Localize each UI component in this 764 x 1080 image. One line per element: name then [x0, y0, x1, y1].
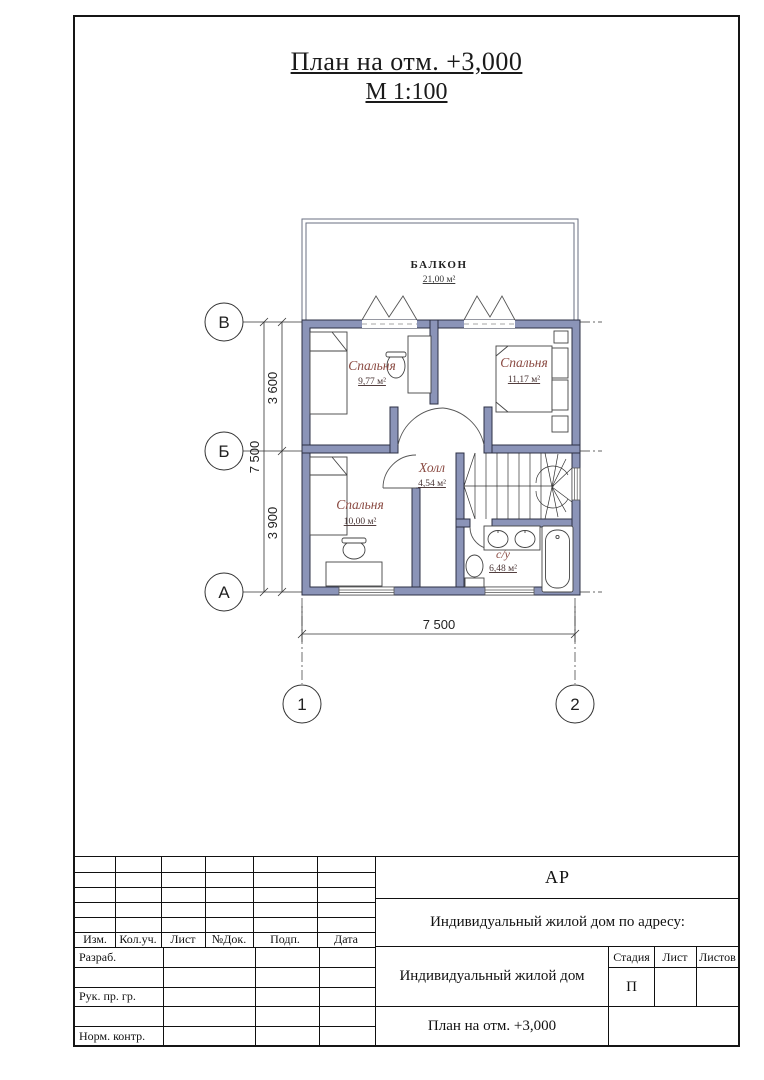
col-data: Дата [317, 932, 375, 947]
bathroom-fixtures [465, 526, 573, 592]
room-ul-area: 9,77 м² [358, 377, 386, 387]
axis-col-right: 2 [570, 695, 579, 714]
dim-v-top: 3 600 [265, 372, 280, 405]
project-code-cell: АР [376, 857, 739, 899]
plan-scale: М 1:100 [75, 79, 738, 106]
room-ll-label: Спальня [336, 497, 384, 512]
dim-h-total: 7 500 [423, 617, 456, 632]
row-razrab: Разраб. [79, 947, 116, 967]
address-text: Индивидуальный жилой дом по адресу: [430, 914, 685, 931]
col-list: Лист [161, 932, 205, 947]
drawing-title: План на отм. +3,000 М 1:100 [75, 47, 738, 106]
stage-value: П [609, 967, 654, 1007]
listov-label: Листов [696, 947, 739, 967]
stage-grid: Стадия Лист Листов П [609, 947, 739, 1007]
project-name: Индивидуальный жилой дом [399, 968, 584, 985]
project-code: АР [545, 867, 570, 888]
bathtub-icon [542, 526, 573, 592]
sink-icon [488, 531, 508, 548]
row-ruk: Рук. пр. гр. [79, 987, 136, 1006]
desk-chair-2 [326, 538, 382, 586]
casement-icon [362, 296, 417, 320]
sheet-frame: План на отм. +3,000 М 1:100 [73, 15, 740, 1047]
title-block-left-grid: Изм. Кол.уч. Лист №Док. Подп. Дата Разра… [75, 857, 375, 1046]
axis-col-left: 1 [297, 695, 306, 714]
col-podp: Подп. [253, 932, 317, 947]
floor-plan: БАЛКОН 21,00 м² Спальня 9,77 м² Спальня … [200, 207, 685, 752]
balcony-label: БАЛКОН [410, 259, 467, 271]
sink-counter [484, 526, 540, 550]
hall-area: 4,54 м² [418, 479, 446, 489]
axis-row-bottom: А [218, 583, 230, 602]
drawing-sheet: План на отм. +3,000 М 1:100 [0, 0, 764, 1080]
room-ll-area: 10,00 м² [344, 517, 377, 527]
bed-single-2 [310, 457, 347, 535]
stairs [464, 453, 572, 519]
row-norm: Норм. контр. [79, 1026, 145, 1046]
stage-label: Стадия [609, 947, 654, 967]
col-izm: Изм. [75, 932, 115, 947]
address-cell: Индивидуальный жилой дом по адресу: [376, 899, 739, 947]
dim-v-bottom: 3 900 [265, 507, 280, 540]
room-ur-area: 11,17 м² [508, 375, 540, 385]
room-ul-label: Спальня [348, 358, 396, 373]
drawing-name: План на отм. +3,000 [428, 1018, 556, 1035]
list-label: Лист [654, 947, 696, 967]
bath-label: с/у [496, 547, 511, 561]
plan-title: План на отм. +3,000 [75, 47, 738, 77]
bed-single [310, 332, 347, 414]
toilet-icon [465, 555, 484, 587]
casement-icon [464, 296, 515, 320]
col-koluch: Кол.уч. [115, 932, 161, 947]
col-doc: №Док. [205, 932, 253, 947]
project-name-cell: Индивидуальный жилой дом [376, 947, 609, 1007]
room-ur-label: Спальня [500, 355, 548, 370]
axis-row-top: В [218, 313, 229, 332]
title-block-right: АР Индивидуальный жилой дом по адресу: И… [375, 857, 738, 1046]
drawing-name-cell: План на отм. +3,000 [376, 1007, 609, 1046]
sink-icon [515, 531, 535, 548]
bath-area: 6,48 м² [489, 564, 517, 574]
balcony-area: 21,00 м² [423, 275, 456, 285]
dim-v-total: 7 500 [247, 441, 262, 474]
hall-label: Холл [418, 460, 445, 475]
axis-row-mid: Б [218, 442, 229, 461]
title-block: Изм. Кол.уч. Лист №Док. Подп. Дата Разра… [75, 856, 738, 1045]
